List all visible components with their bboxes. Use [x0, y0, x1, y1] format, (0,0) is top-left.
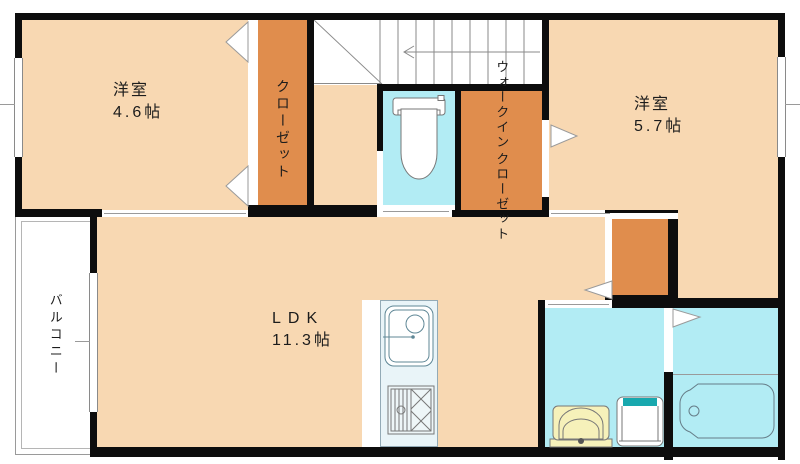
ldk-size: 11.3帖: [272, 330, 333, 352]
wall-bath-top: [668, 298, 785, 308]
window-bedroom2: [777, 57, 786, 157]
closet2-top-gap: [605, 213, 678, 219]
washbasin-icon: [548, 403, 614, 449]
wall-top: [15, 13, 785, 20]
wic-label-line1: ウォークイン: [493, 60, 511, 150]
ldk-corridor-area: [538, 217, 612, 300]
bedroom2-name: 洋室: [634, 94, 684, 116]
wic-label-line2: クローゼット: [493, 152, 511, 242]
wall-bedroom1-bottom: [15, 209, 102, 217]
kitchen-counter-edge: [362, 300, 380, 447]
bedroom1-name: 洋室: [113, 80, 163, 102]
wall-stairs-bottom: [377, 84, 549, 91]
bathtub-icon: [676, 380, 778, 444]
wall-landing-bottom: [314, 205, 377, 217]
bedroom1-size: 4.6帖: [113, 102, 163, 124]
wall-closet2-right: [668, 210, 678, 308]
wall-washroom-left: [538, 300, 545, 447]
wall-toilet-left: [377, 91, 383, 151]
washing-machine-icon: [615, 395, 665, 448]
wall-closet-stairs: [307, 13, 314, 205]
kitchen-sink-icon: [383, 304, 435, 370]
ldk-name: LDK: [272, 308, 333, 330]
balcony-label-text: バルコニー: [46, 293, 64, 378]
window-bedroom1: [14, 58, 23, 157]
wall-bottom: [90, 447, 785, 457]
closet2-area: [612, 219, 668, 295]
bedroom2-size: 5.7帖: [634, 116, 684, 138]
stairs-direction-arrow: [404, 46, 540, 58]
bedroom2-label: 洋室 5.7帖: [634, 94, 684, 137]
closet-label: クローゼット: [258, 50, 307, 210]
wall-bedroom2-left-lower: [542, 197, 549, 217]
bath-door-gap: [664, 308, 673, 372]
balcony-label: バルコニー: [15, 240, 95, 430]
stair-landing-area: [314, 85, 377, 205]
walkin-closet-label: ウォークイン クローゼット: [461, 93, 542, 208]
toilet-icon: [390, 95, 450, 195]
washroom-door-gap: [545, 300, 612, 308]
wall-bedroom2-left-upper: [542, 13, 549, 120]
closet-label-text: クローゼット: [273, 79, 292, 181]
bedroom1-label: 洋室 4.6帖: [113, 80, 163, 123]
floor-plan: 洋室 4.6帖 洋室 5.7帖 LDK 11.3帖 クローゼット ウォークイン …: [0, 0, 800, 464]
closet2-door-gap: [605, 219, 612, 295]
room-bedroom2-extension-area: [678, 210, 778, 298]
ldk-label: LDK 11.3帖: [272, 308, 333, 351]
stove-icon: [387, 385, 435, 435]
